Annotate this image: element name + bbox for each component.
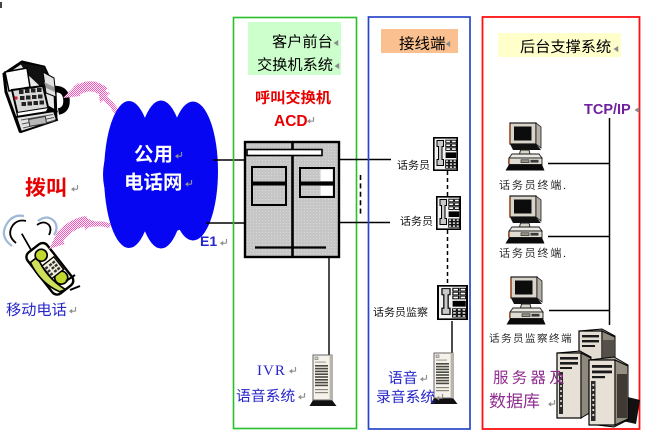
- svg-text:ACD: ACD: [274, 113, 308, 130]
- svg-text:IVR: IVR: [257, 363, 286, 379]
- svg-text:TCP/IP: TCP/IP: [584, 102, 631, 118]
- svg-text:E1: E1: [200, 233, 217, 249]
